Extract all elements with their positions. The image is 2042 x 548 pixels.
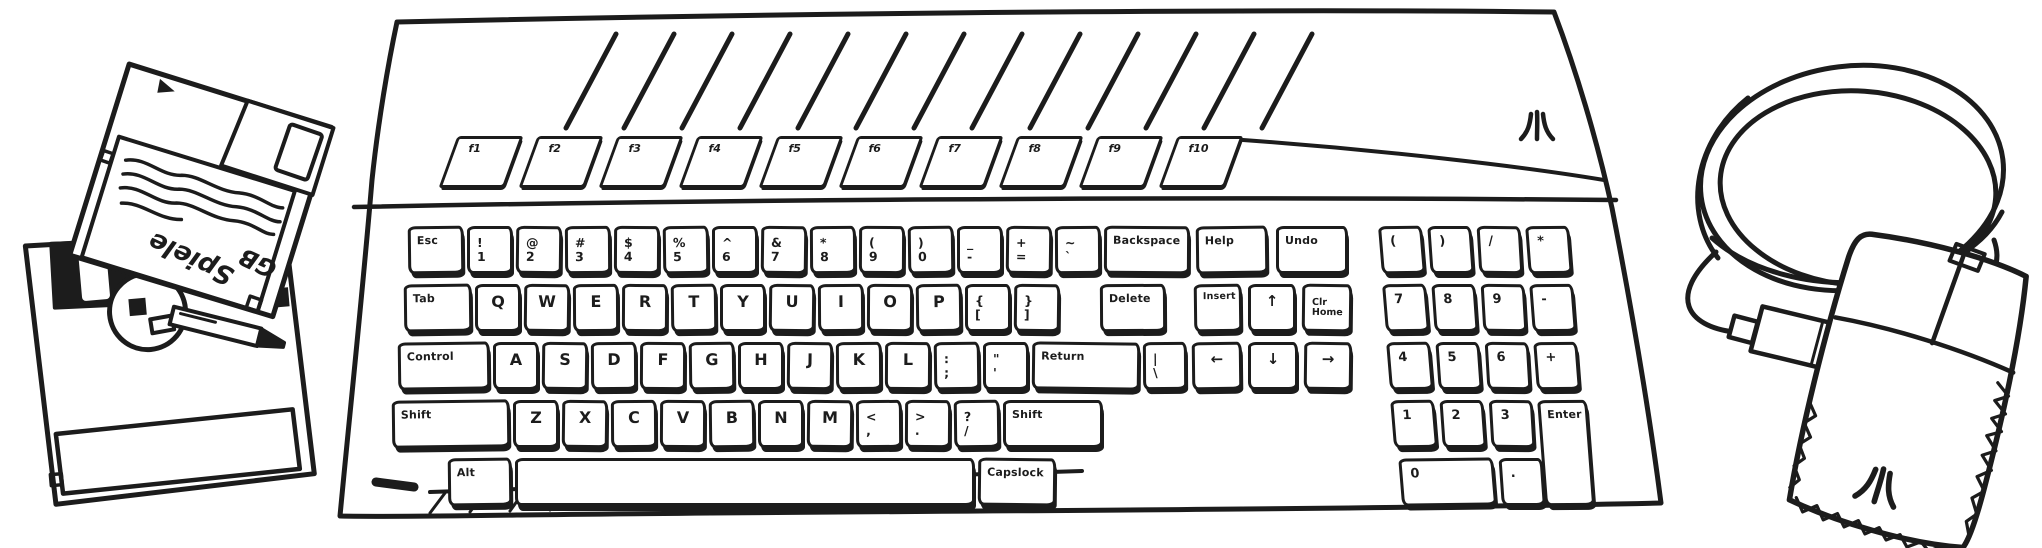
keyboard-keys: f1f2f3f4f5f6f7f8f9f10Esc!1@2#3$4%5^6&7*8… xyxy=(0,0,2042,548)
key-numpad-plus: + xyxy=(1533,342,1581,390)
key-numpad-minus: - xyxy=(1529,284,1577,332)
key-numpad-0: 0 xyxy=(1398,457,1497,506)
numpad-block: ()/*789-456+123Enter0. xyxy=(0,0,2042,548)
key-numpad-3: 3 xyxy=(1489,400,1536,449)
key-numpad-enter: Enter xyxy=(1537,400,1595,506)
key-numpad-dot: . xyxy=(1499,458,1546,506)
key-numpad-open-paren: ( xyxy=(1378,226,1426,275)
key-numpad-9: 9 xyxy=(1481,284,1528,333)
key-numpad-close-paren: ) xyxy=(1427,226,1474,274)
sketch-scene: Spiele GB xyxy=(0,0,2042,548)
key-numpad-1: 1 xyxy=(1390,400,1438,449)
key-numpad-multiply: * xyxy=(1525,226,1573,274)
key-numpad-6: 6 xyxy=(1485,342,1532,391)
key-numpad-7: 7 xyxy=(1382,284,1430,333)
key-numpad-8: 8 xyxy=(1431,284,1478,332)
key-numpad-divide: / xyxy=(1477,226,1524,275)
key-numpad-5: 5 xyxy=(1435,342,1482,390)
key-numpad-4: 4 xyxy=(1386,342,1434,391)
key-numpad-2: 2 xyxy=(1439,400,1486,448)
